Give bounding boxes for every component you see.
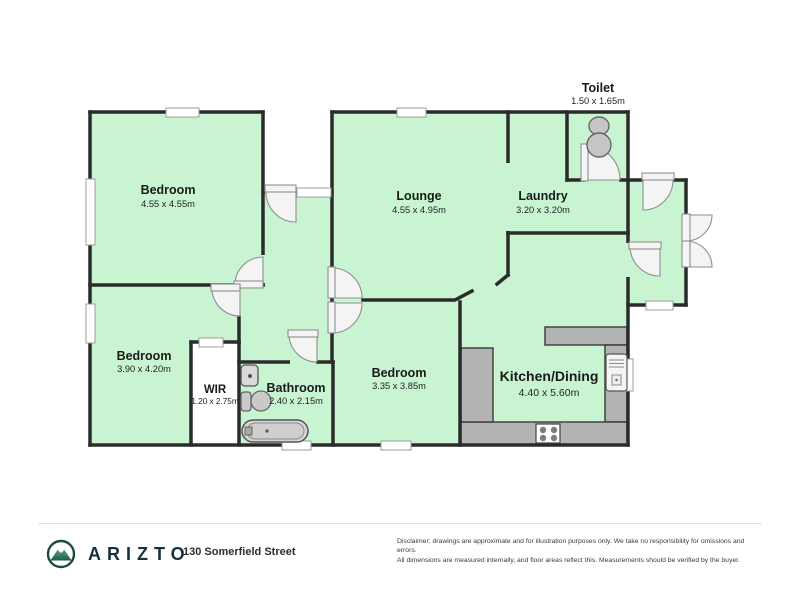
wir-dims: 1.20 x 2.75m	[191, 397, 239, 406]
disclaimer: Disclaimer: drawings are approximate and…	[397, 537, 765, 565]
counter-left-column	[461, 348, 493, 422]
lounge-label: Lounge	[396, 189, 441, 203]
window-bedroom3-bottom	[381, 441, 411, 450]
disclaimer-line-1: Disclaimer: drawings are approximate and…	[397, 537, 765, 556]
door-leaf-french-lower	[682, 241, 690, 267]
bedroom-3-label: Bedroom	[372, 366, 427, 380]
door-leaf-french-upper	[682, 214, 690, 241]
window-bedroom1-top	[166, 108, 199, 117]
door-leaf-laundry-porch	[642, 173, 674, 180]
bedroom-1-dims: 4.55 x 4.55m	[141, 199, 195, 209]
kitchen-dining-dims: 4.40 x 5.60m	[519, 387, 580, 399]
floorplan-page: Bedroom 4.55 x 4.55m Lounge 4.55 x 4.95m…	[0, 0, 800, 600]
bathroom-label: Bathroom	[266, 381, 325, 395]
door-leaf-bedroom3	[328, 302, 335, 333]
door-leaf-toilet	[581, 144, 588, 181]
wir-label: WIR	[204, 384, 227, 396]
bedroom-2-label: Bedroom	[117, 349, 172, 363]
bathroom-sink-icon	[241, 365, 258, 386]
door-leaf-bathroom	[288, 330, 318, 337]
laundry-dims: 3.20 x 3.20m	[516, 205, 570, 215]
lounge-dims: 4.55 x 4.95m	[392, 205, 446, 215]
window-porch-bottom	[646, 301, 673, 310]
door-leaf-entry	[265, 185, 296, 192]
window-bedroom2-left	[86, 304, 95, 343]
toilet-fixture-icon	[587, 117, 611, 157]
disclaimer-line-2: All dimensions are measured internally, …	[397, 556, 765, 565]
door-leaf-bedroom2	[211, 284, 240, 291]
bedroom-1-label: Bedroom	[141, 183, 196, 197]
kitchen-dining-label: Kitchen/Dining	[500, 368, 599, 384]
stove-icon	[536, 424, 560, 443]
mountain-logo-icon	[46, 539, 76, 569]
laundry-label: Laundry	[518, 189, 567, 203]
counter-top-bar	[545, 327, 627, 345]
bedroom-3-dims: 3.35 x 3.85m	[372, 381, 426, 391]
window-entry-recess	[297, 188, 331, 197]
brand-wordmark: ARIZTO	[88, 544, 191, 565]
window-lounge-top	[397, 108, 426, 117]
brand-logo: ARIZTO	[46, 539, 191, 569]
door-leaf-kitchen-porch	[629, 242, 661, 249]
bathtub-icon	[242, 420, 308, 442]
floorplan-drawing: Bedroom 4.55 x 4.55m Lounge 4.55 x 4.95m…	[0, 0, 800, 528]
fridge-icon	[606, 354, 627, 391]
footer-divider	[38, 523, 762, 524]
window-wir-top	[199, 338, 223, 347]
door-leaf-lounge	[328, 267, 335, 298]
bedroom-2-dims: 3.90 x 4.20m	[117, 364, 171, 374]
property-address: 130 Somerfield Street	[183, 546, 296, 558]
toilet-dims: 1.50 x 1.65m	[571, 96, 625, 106]
toilet-label: Toilet	[582, 81, 615, 95]
bathroom-dims: 2.40 x 2.15m	[269, 396, 323, 406]
window-bedroom1-left	[86, 179, 95, 245]
